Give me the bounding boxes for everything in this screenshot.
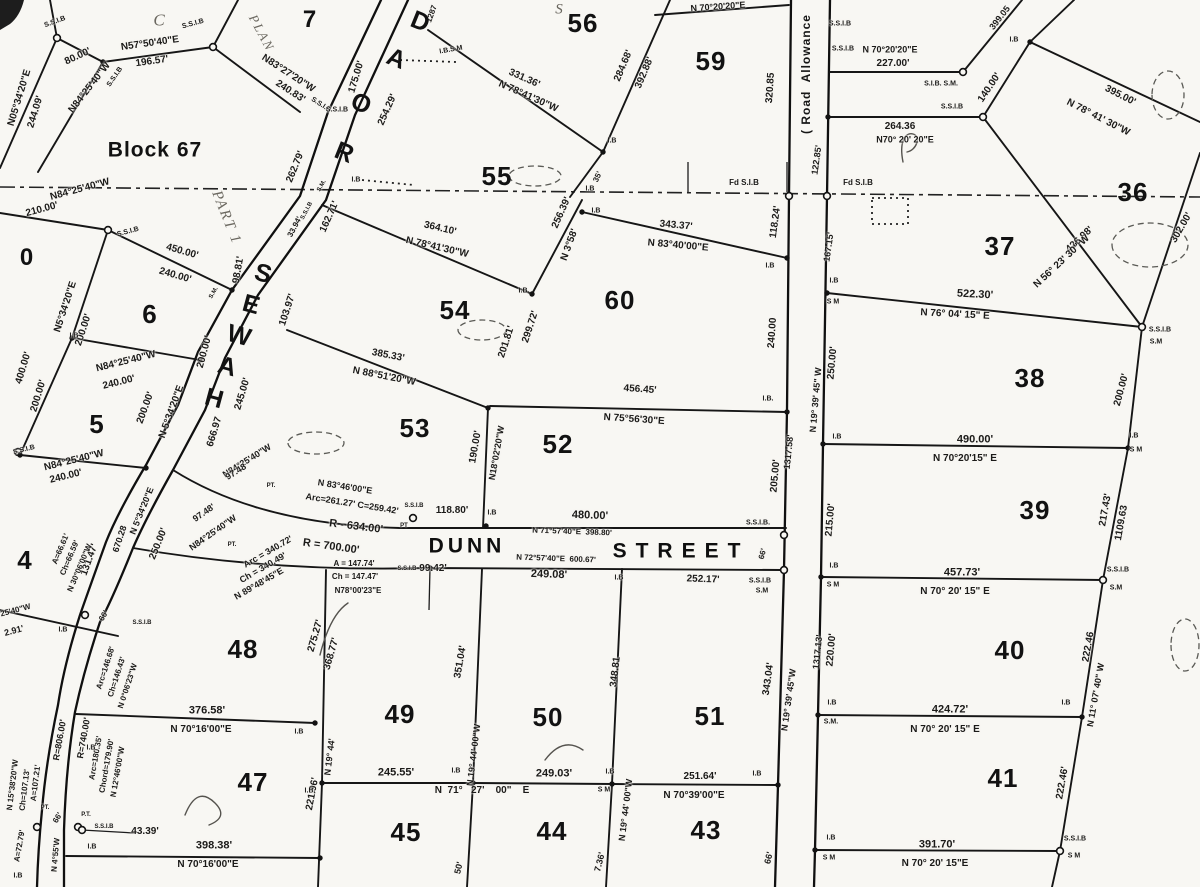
boundary-line xyxy=(1030,0,1074,42)
measurement-label: 264.36 xyxy=(885,122,916,132)
lot-number: 59 xyxy=(696,48,727,74)
survey-monument-found xyxy=(483,523,488,528)
measurement-label: 424.72' xyxy=(932,705,968,716)
survey-monument-open xyxy=(410,515,417,522)
measurement-label: N 70° 20' 15"E xyxy=(902,859,969,869)
boundary-line xyxy=(322,783,778,785)
measurement-label: 251.64' xyxy=(684,772,717,782)
lot-number: 52 xyxy=(543,431,574,457)
monument-label: S.S.I.B. xyxy=(746,520,770,527)
boundary-line xyxy=(108,230,232,290)
monument-label: I.B xyxy=(753,771,762,778)
measurement-label: N 70°16'00"E xyxy=(170,725,231,735)
monument-label: I.B. xyxy=(763,396,774,403)
monument-label: I.B xyxy=(828,700,837,707)
monument-label: S.S.I.B xyxy=(397,566,416,572)
monument-label: S.S.I.B xyxy=(832,46,854,53)
lot-number: 39 xyxy=(1020,497,1051,523)
monument-label: S.S.I.B xyxy=(1064,836,1086,843)
measurement-label: N 70°20'20"E xyxy=(862,46,917,55)
measurement-label: 249.08' xyxy=(531,569,568,581)
survey-monument-found xyxy=(784,409,789,414)
boundary-line xyxy=(362,180,414,185)
monument-label: I.B xyxy=(827,835,836,842)
lot-number: 0 xyxy=(20,246,34,270)
boundary-line xyxy=(1128,327,1142,448)
monument-label: PT xyxy=(400,523,408,529)
measurement-label: 118.80' xyxy=(436,506,468,516)
survey-monument-open xyxy=(1100,577,1107,584)
monument-label: I.B xyxy=(88,844,97,851)
measurement-label: 227.00' xyxy=(877,59,910,69)
survey-monument-open xyxy=(82,612,89,619)
boundary-line xyxy=(0,38,57,168)
monument-label: I.B xyxy=(608,138,617,145)
survey-monument-found xyxy=(1027,39,1032,44)
measurement-label: 249.03' xyxy=(536,769,572,780)
monument-label: S.S.I.B xyxy=(1107,567,1129,574)
survey-plat-map: S.S.I.B80.00'N57°50'40"E196.57'S.S.I.BN8… xyxy=(0,0,1200,887)
survey-monument-open xyxy=(980,114,987,121)
lot-number: 47 xyxy=(238,769,269,795)
monument-label: I.B xyxy=(295,729,304,736)
lot-number: 49 xyxy=(385,701,416,727)
underlying-plan-text: C xyxy=(153,12,166,29)
monument-label: PT. xyxy=(41,805,50,811)
monument-label: I.B xyxy=(586,186,595,193)
monument-label: P.T. xyxy=(81,812,91,818)
monument-label: S.M. xyxy=(824,719,838,726)
monument-label: S.S.I.B xyxy=(404,503,423,509)
block-label: Block 67 xyxy=(108,140,202,161)
monument-label: I.B xyxy=(488,510,497,517)
monument-label: I.B xyxy=(1062,700,1071,707)
parcel-linework xyxy=(0,0,1200,887)
monument-label: I.B xyxy=(592,208,601,215)
handwritten-scribble xyxy=(545,745,583,760)
lot-number: 36 xyxy=(1118,179,1149,205)
measurement-label: N 70° 20' 15" E xyxy=(920,587,990,597)
boundary-line xyxy=(213,0,238,47)
survey-monument-found xyxy=(824,290,829,295)
monument-label: S M xyxy=(827,299,839,306)
survey-monument-found xyxy=(818,574,823,579)
measurement-label: 99.42' xyxy=(419,564,446,574)
lot-number: 56 xyxy=(568,10,599,36)
survey-monument-open xyxy=(786,193,793,200)
underlying-plan-text: S xyxy=(555,3,565,18)
monument-label: Fd S.I.B xyxy=(729,179,759,187)
monument-label: S.S.I.B xyxy=(94,824,113,830)
street-name-dunn: DUNN xyxy=(429,536,506,557)
measurement-label: 320.85 xyxy=(765,72,777,103)
monument-label: S.S.I.B xyxy=(326,107,348,114)
measurement-label: Ch = 147.47' xyxy=(332,573,378,581)
lot-number: 48 xyxy=(228,636,259,662)
measurement-label: 490.00' xyxy=(957,435,993,446)
lot-number: 40 xyxy=(995,637,1026,663)
survey-monument-open xyxy=(781,567,788,574)
survey-monument-found xyxy=(825,114,830,119)
boundary-line xyxy=(400,60,456,62)
monument-label: I.B. xyxy=(519,288,530,295)
boundary-line xyxy=(983,117,1142,327)
survey-monument-open xyxy=(210,44,217,51)
survey-monument-open xyxy=(79,827,86,834)
monument-label: S.M xyxy=(756,588,768,595)
measurement-label: 391.70' xyxy=(919,840,955,851)
lot-number: 7 xyxy=(303,8,317,32)
monument-label: S M xyxy=(827,582,839,589)
lot-number: 5 xyxy=(89,411,104,437)
survey-monument-found xyxy=(600,149,605,154)
boundary-line xyxy=(1052,851,1060,887)
measurement-label: 480.00' xyxy=(572,510,609,522)
boundary-line xyxy=(82,830,134,833)
survey-monument-found xyxy=(775,782,780,787)
monument-label: I.B xyxy=(766,263,775,270)
monument-label: S.M xyxy=(1150,339,1162,346)
measurement-label: A = 147.74' xyxy=(334,560,375,568)
boundary-line xyxy=(0,0,24,30)
handwritten-scribble xyxy=(509,166,561,186)
monument-label: S.S.I.B xyxy=(829,21,851,28)
lot-number: 41 xyxy=(988,765,1019,791)
measurement-label: N 70°39'00"E xyxy=(663,791,724,801)
monument-label: I.B xyxy=(606,769,615,776)
survey-monument-open xyxy=(781,532,788,539)
monument-label: PT. xyxy=(228,542,237,548)
survey-monument-open xyxy=(105,227,112,234)
lot-number: 4 xyxy=(17,547,32,573)
lot-number: 45 xyxy=(391,819,422,845)
survey-monument-found xyxy=(143,465,148,470)
survey-monument-found xyxy=(312,720,317,725)
survey-monument-open xyxy=(34,824,41,831)
boundary-line xyxy=(1030,42,1200,122)
survey-monument-found xyxy=(485,405,490,410)
monument-label: PT. xyxy=(267,483,276,489)
boundary-line xyxy=(66,856,320,858)
measurement-label: 43.39' xyxy=(131,827,158,837)
monument-label: I.B xyxy=(70,333,79,340)
lot-number: 54 xyxy=(440,297,471,323)
survey-monument-found xyxy=(229,287,234,292)
survey-monument-found xyxy=(1079,714,1084,719)
monument-label: S.S.I.B xyxy=(941,104,963,111)
boundary-line xyxy=(0,187,1200,197)
road-allowance-label: ( Road Allowance xyxy=(800,14,812,134)
lot-number: 60 xyxy=(605,287,636,313)
monument-label: S.M xyxy=(1110,585,1122,592)
survey-monument-found xyxy=(317,855,322,860)
monument-label: I.B xyxy=(830,563,839,570)
measurement-label: 522.30' xyxy=(957,289,994,302)
monument-label: S M xyxy=(823,855,835,862)
monument-label: I.B xyxy=(352,177,361,184)
lot-number: 51 xyxy=(695,703,726,729)
measurement-label: 240.00 xyxy=(767,317,779,348)
measurement-label: N 70°16'00"E xyxy=(177,860,238,870)
monument-label: I.B xyxy=(830,278,839,285)
monument-label: S M xyxy=(598,787,610,794)
lot-number: 53 xyxy=(400,415,431,441)
handwritten-scribble xyxy=(1171,619,1199,671)
measurement-label: N78°00'23"E xyxy=(335,587,382,595)
monument-label: S.S.I.B xyxy=(132,620,151,626)
street-name-street: STREET xyxy=(613,541,750,562)
lot-number: 50 xyxy=(533,704,564,730)
measurement-label: N 71° 27' 00" E xyxy=(435,786,530,796)
lot-number: 37 xyxy=(985,233,1016,259)
measurement-label: N 70°20'15" E xyxy=(933,454,997,464)
survey-monument-found xyxy=(815,712,820,717)
handwritten-scribble xyxy=(1152,71,1184,119)
lot-number: 44 xyxy=(537,818,568,844)
monument-label: I.B xyxy=(14,873,23,880)
monument-label: S M xyxy=(1130,447,1142,454)
measurement-label: N 70° 20' 15" E xyxy=(910,725,980,735)
boundary-line xyxy=(429,568,430,610)
lot-number: 55 xyxy=(482,163,513,189)
survey-monument-found xyxy=(784,255,789,260)
boundary-line xyxy=(173,470,786,528)
monument-label: Fd S.I.B xyxy=(843,179,873,187)
measurement-label: 252.17' xyxy=(686,574,719,585)
boundary-line xyxy=(490,406,787,412)
survey-monument-found xyxy=(820,441,825,446)
survey-monument-open xyxy=(824,193,831,200)
monument-label: I.B xyxy=(87,745,96,752)
measurement-label: 457.73' xyxy=(944,568,980,579)
measurement-label: 376.58' xyxy=(189,706,225,717)
monument-label: I.B xyxy=(833,434,842,441)
survey-monument-open xyxy=(1139,324,1146,331)
monument-label: S M xyxy=(1068,853,1080,860)
boundary-line xyxy=(318,783,322,887)
boundary-line xyxy=(0,213,108,230)
monument-label: I.B xyxy=(1130,433,1139,440)
handwritten-scribble xyxy=(288,432,344,454)
survey-monument-found xyxy=(812,847,817,852)
survey-monument-open xyxy=(54,35,61,42)
measurement-label: N70° 20' 20"E xyxy=(876,136,934,145)
monument-label: I.B xyxy=(1010,37,1019,44)
boundary-line xyxy=(287,330,488,408)
survey-monument-open xyxy=(1057,848,1064,855)
monument-label: I.B xyxy=(452,768,461,775)
monument-label: I.B xyxy=(615,575,624,582)
boundary-line xyxy=(872,198,908,224)
monument-label: S.S.I.B xyxy=(749,578,771,585)
measurement-label: 245.55' xyxy=(378,768,414,779)
monument-label: S.I.B. S.M. xyxy=(924,81,958,88)
monument-label: I.B. xyxy=(305,788,316,795)
survey-monument-open xyxy=(960,69,967,76)
survey-monument-found xyxy=(579,209,584,214)
monument-label: I.B xyxy=(59,627,68,634)
survey-monument-found xyxy=(529,291,534,296)
lot-number: 6 xyxy=(142,301,157,327)
measurement-label: 398.38' xyxy=(196,841,232,852)
handwritten-scribble xyxy=(185,796,221,825)
lot-number: 38 xyxy=(1015,365,1046,391)
monument-label: S.S.I.B xyxy=(1149,327,1171,334)
lot-number: 43 xyxy=(691,817,722,843)
